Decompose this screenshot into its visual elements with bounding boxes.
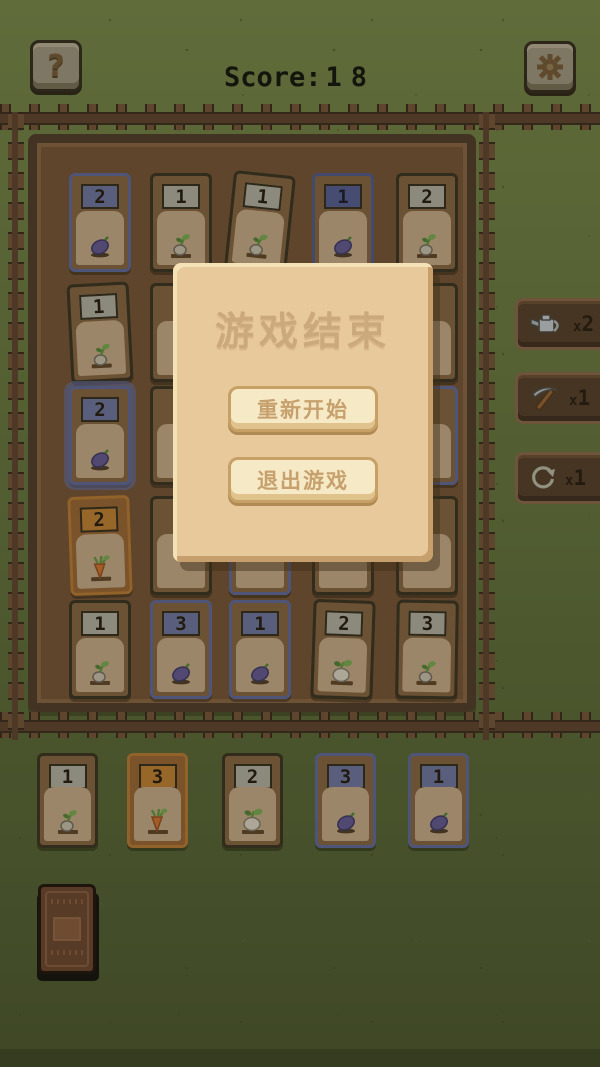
game-over-dialog: 游戏结束 重新开始 退出游戏	[173, 263, 433, 562]
restart-button[interactable]: 重新开始	[228, 386, 378, 432]
quit-button[interactable]: 退出游戏	[228, 457, 378, 503]
dialog-title: 游戏结束	[173, 301, 433, 357]
